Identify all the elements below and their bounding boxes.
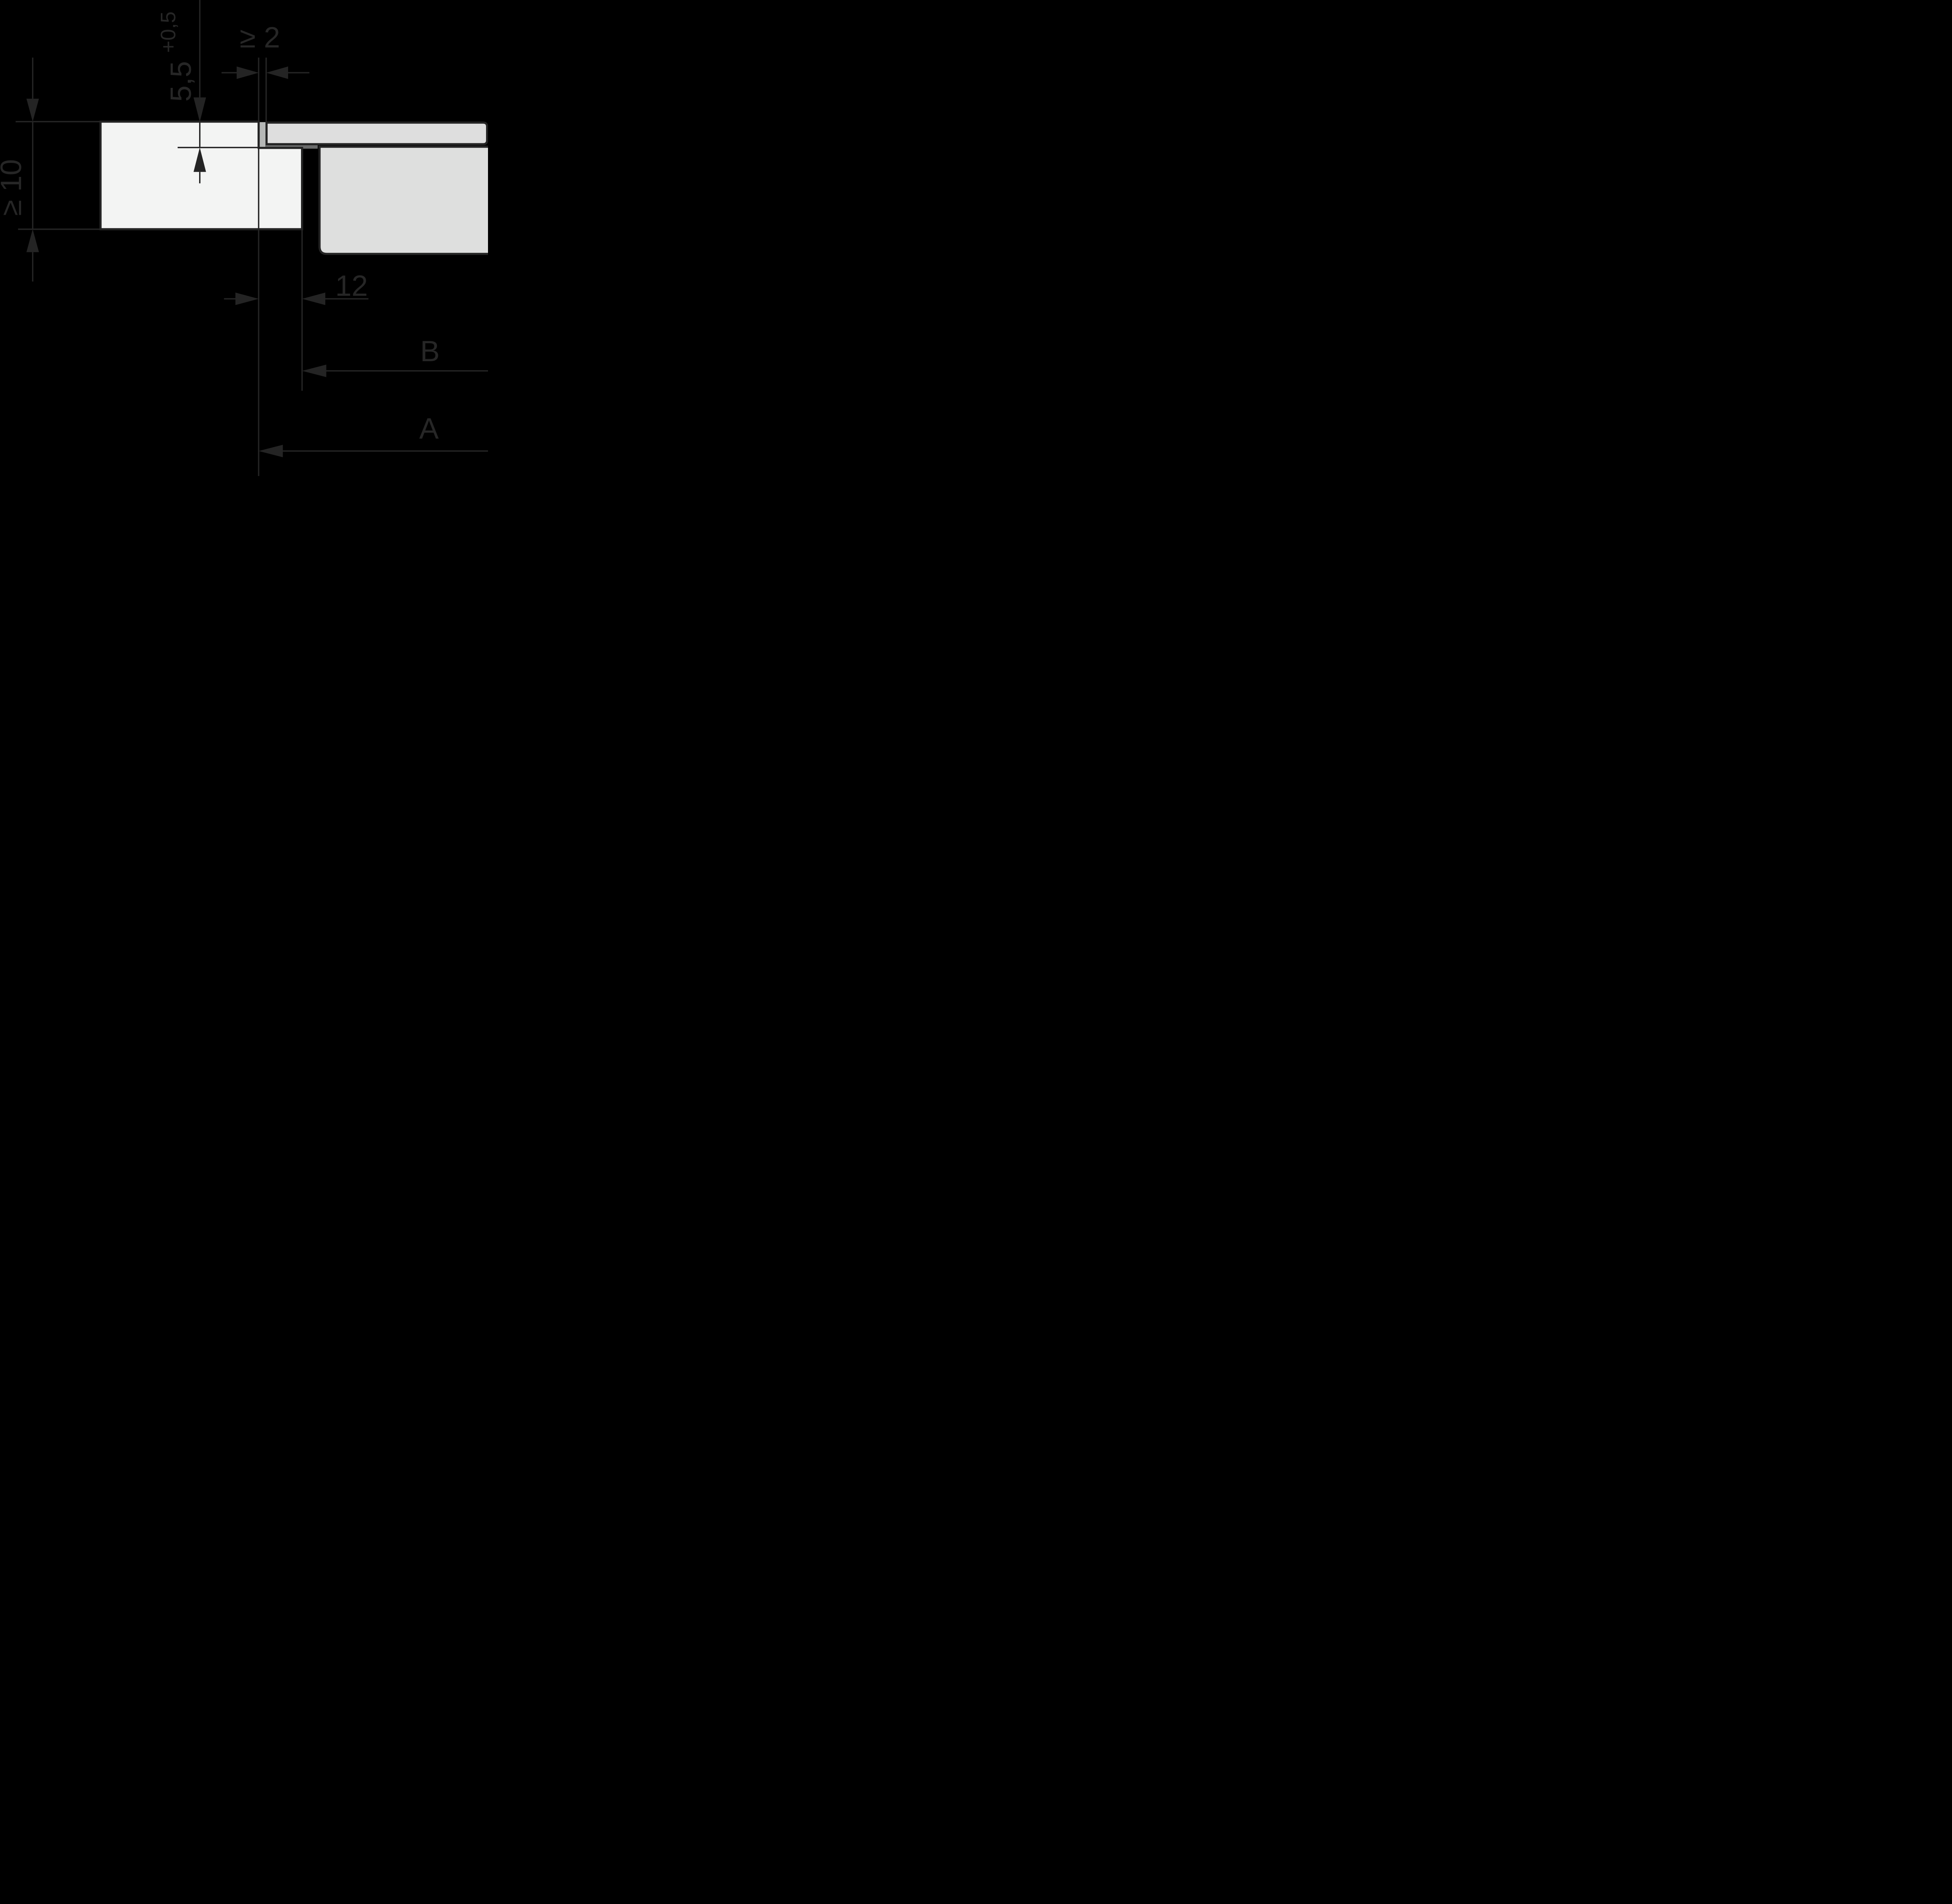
dim-label-ledge-width: 12 — [335, 269, 368, 302]
dim-label-min-clearance: ≥ 10 — [0, 159, 27, 216]
installation-diagram: ≥ 2 12 B A ≥ 10 5,5 +0,5 — [0, 0, 488, 476]
drawing-canvas: ≥ 2 12 B A ≥ 10 5,5 +0,5 — [0, 0, 488, 476]
dim-label-cutout-width: B — [420, 335, 440, 367]
cooktop-glass-panel-shape — [267, 123, 487, 144]
appliance-body-shape — [320, 147, 488, 254]
dim-label-recess-width: A — [419, 412, 439, 445]
joint-filler-shape — [259, 122, 266, 148]
dim-label-recess-depth-value: 5,5 — [164, 61, 197, 102]
dim-label-recess-depth-tolerance: +0,5 — [157, 11, 180, 53]
dim-label-joint-gap: ≥ 2 — [240, 21, 280, 53]
